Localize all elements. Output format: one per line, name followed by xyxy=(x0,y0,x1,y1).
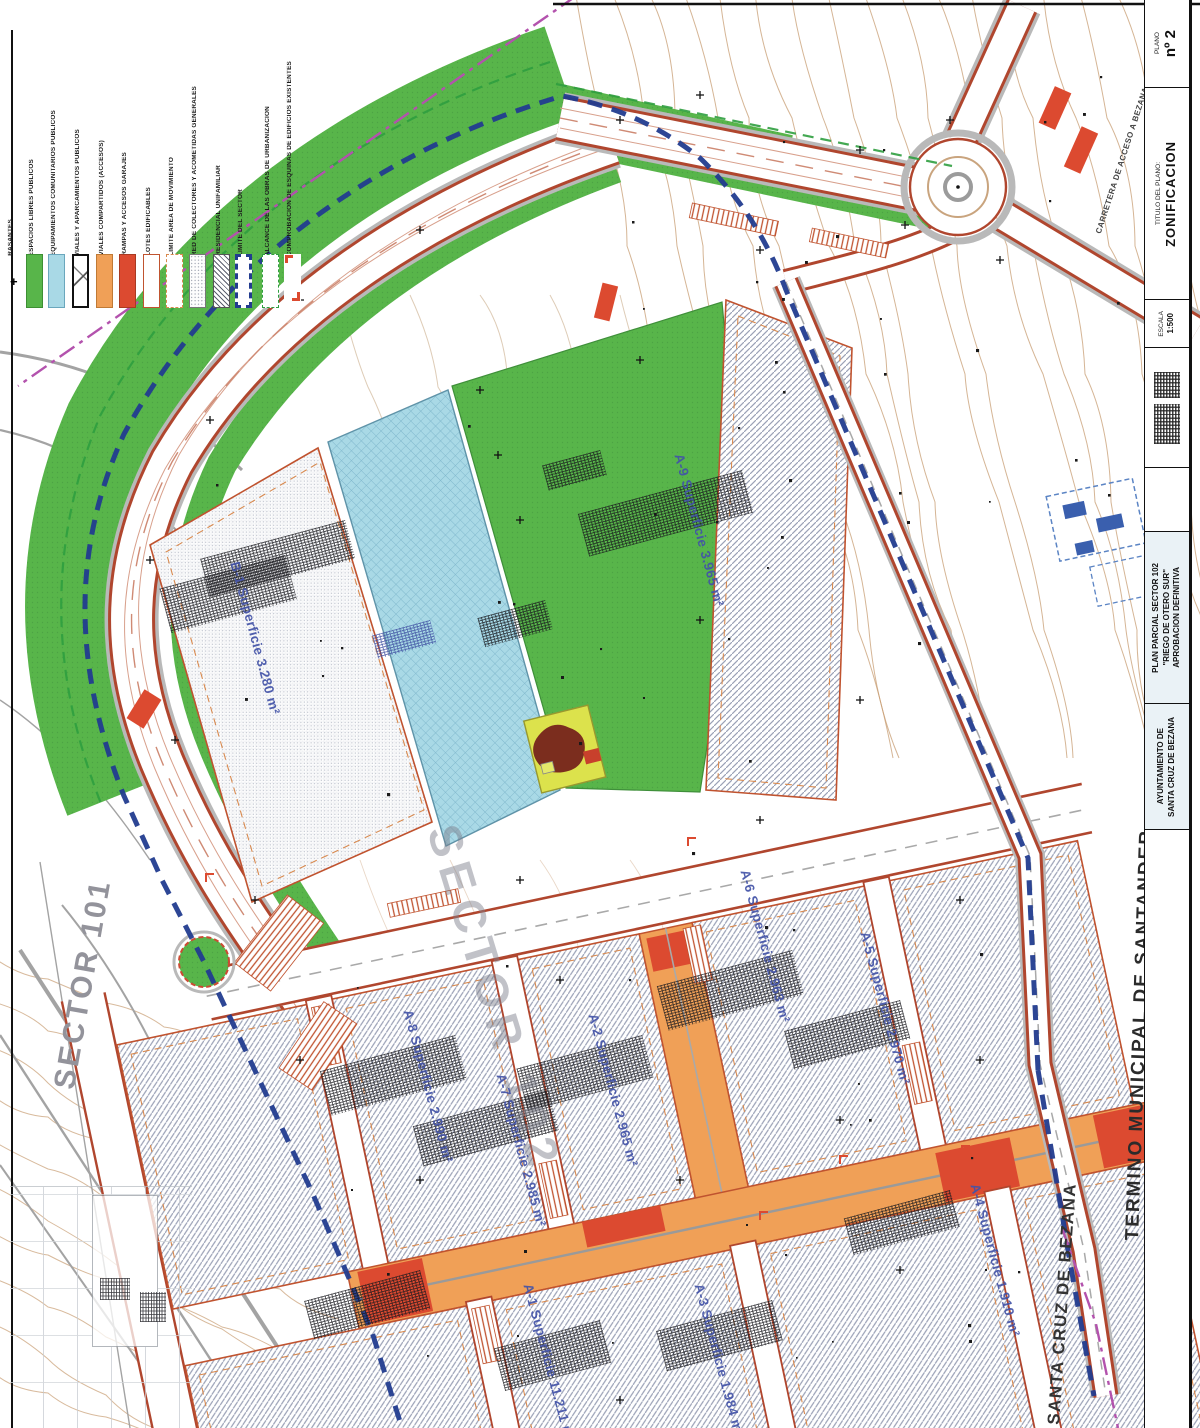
legend-swatch-shared-streets xyxy=(96,254,113,308)
legend-swatch-works-scope xyxy=(262,254,279,308)
plano-number-box: PLANO nº 2 xyxy=(1145,0,1189,88)
crosswalk-1 xyxy=(1039,86,1072,130)
title-block: PLANO nº 2 TITULO DEL PLANO: ZONIFICACIO… xyxy=(1144,0,1192,1428)
legend-label: ALCANCE DE LAS OBRAS DE URBANIZACION xyxy=(265,106,272,256)
roundabout xyxy=(904,133,1012,241)
legend-swatch-residential xyxy=(213,254,230,308)
scale-value: 1:500 xyxy=(1167,313,1176,333)
legend-label: COMPROBACION DE ESQUINAS DE EDIFICIOS EX… xyxy=(287,61,294,256)
legend-swatch-green-space xyxy=(26,254,43,308)
survey-table-box xyxy=(92,1195,158,1347)
legend-label: ESPACIOS LIBRES PUBLICOS xyxy=(29,159,36,256)
project-line: "RIEGO DE OTERO SUR" xyxy=(1163,569,1172,665)
plano-number: nº 2 xyxy=(1163,30,1179,57)
legend-label: LIMITE DEL SECTOR xyxy=(238,189,245,256)
legend-label: EQUIPAMIENTOS COMUNITARIOS PUBLICOS xyxy=(51,110,58,256)
project-box: PLAN PARCIAL SECTOR 102 "RIEGO DE OTERO … xyxy=(1145,532,1189,704)
legend-label: RESIDENCIAL UNIFAMILIAR xyxy=(216,165,223,256)
empty-box xyxy=(1145,830,1189,1426)
scale-box: ESCALA 1:500 xyxy=(1145,300,1189,348)
legend-label: LOTES EDIFICABLES xyxy=(146,187,153,256)
legend-label: RAMPAS Y ACCESOS GARAJES xyxy=(122,152,129,256)
legend-label: RASANTES xyxy=(8,219,15,256)
utility-cluster xyxy=(1046,478,1157,612)
legend-swatch-buildable-lots xyxy=(143,254,160,308)
rasantes-plus-icon: + xyxy=(10,274,18,289)
plan-title-label: TITULO DEL PLANO: xyxy=(1155,162,1162,225)
legend: + RASANTES ESPACIOS LIBRES PUBLICOS EQUI… xyxy=(6,30,314,326)
table-text xyxy=(100,1278,130,1300)
legend-swatch-equipment xyxy=(48,254,65,308)
stamps-box xyxy=(1145,348,1189,468)
client-line: AYUNTAMIENTO DE xyxy=(1157,728,1166,804)
legend-label: VIALES COMPARTIDOS (ACCESOS) xyxy=(99,140,106,256)
scale-label: ESCALA xyxy=(1158,311,1165,337)
legend-label: VIALES Y APARCAMIENTOS PUBLICOS xyxy=(75,129,82,256)
plano-label: PLANO xyxy=(1154,32,1161,54)
surveyor-stamp xyxy=(1154,404,1180,444)
client-line: SANTA CRUZ DE BEZANA xyxy=(1168,717,1177,817)
crosswalk-2 xyxy=(1064,126,1098,174)
project-line: APROBACION DEFINITIVA xyxy=(1173,567,1182,668)
legend-swatch-sector-limit xyxy=(235,254,252,308)
legend-swatch-collectors xyxy=(189,254,206,308)
legend-swatch-movement-area xyxy=(166,254,183,308)
client-box: AYUNTAMIENTO DE SANTA CRUZ DE BEZANA xyxy=(1145,704,1189,830)
legend-swatch-ramps xyxy=(119,254,136,308)
urban-plan-sheet: + RASANTES ESPACIOS LIBRES PUBLICOS EQUI… xyxy=(0,0,1200,1428)
crosswalk-3 xyxy=(594,283,618,322)
legend-label: RED DE COLECTORES Y ACOMETIDAS GENERALES xyxy=(192,86,199,256)
spacer-box xyxy=(1145,468,1189,532)
legend-swatch-corner-checks xyxy=(284,254,301,308)
table-text xyxy=(140,1292,166,1322)
plan-title: ZONIFICACION xyxy=(1164,141,1178,247)
legend-label: LIMITE AREA DE MOVIMIENTO xyxy=(169,157,176,256)
small-roundabout xyxy=(174,932,234,992)
project-line: PLAN PARCIAL SECTOR 102 xyxy=(1152,563,1161,673)
architect-stamp xyxy=(1154,372,1180,398)
legend-swatch-roads-parking xyxy=(72,254,89,308)
plan-title-box: TITULO DEL PLANO: ZONIFICACION xyxy=(1145,88,1189,300)
